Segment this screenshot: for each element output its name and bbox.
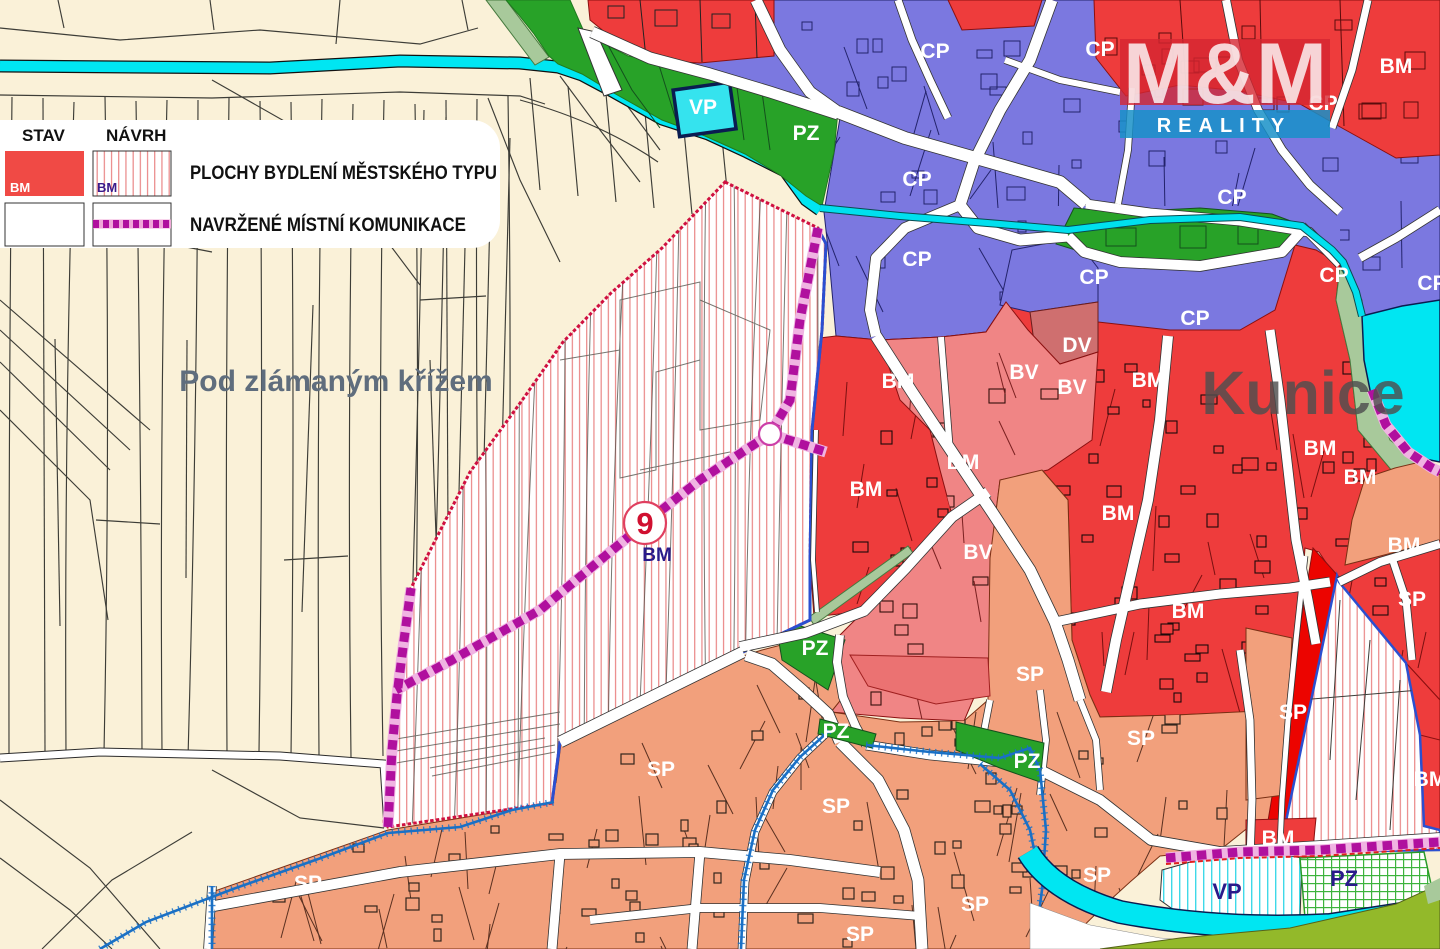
svg-text:CP: CP [1079, 266, 1108, 289]
svg-text:DV: DV [1062, 334, 1091, 357]
svg-text:CP: CP [902, 168, 931, 191]
svg-text:PZ: PZ [1330, 866, 1358, 891]
svg-text:BM: BM [1344, 466, 1377, 489]
svg-text:REALITY: REALITY [1157, 115, 1292, 137]
svg-text:BV: BV [963, 541, 992, 564]
svg-text:PLOCHY BYDLENÍ MĚSTSKÉHO TYPU: PLOCHY BYDLENÍ MĚSTSKÉHO TYPU [190, 162, 497, 184]
svg-text:SP: SP [1398, 588, 1426, 611]
svg-text:PZ: PZ [793, 122, 820, 145]
svg-text:BM: BM [1414, 768, 1440, 791]
svg-text:Kunice: Kunice [1201, 359, 1404, 427]
svg-text:CP: CP [1319, 264, 1348, 287]
svg-text:BV: BV [1057, 376, 1086, 399]
svg-text:SP: SP [1016, 663, 1044, 686]
svg-text:CP: CP [1417, 272, 1440, 295]
svg-text:BV: BV [1009, 361, 1038, 384]
svg-text:SP: SP [1279, 701, 1307, 724]
svg-text:CP: CP [902, 248, 931, 271]
svg-text:BM: BM [947, 451, 980, 474]
svg-text:BM: BM [10, 180, 30, 195]
svg-text:SP: SP [294, 872, 322, 895]
svg-text:9: 9 [636, 506, 653, 541]
svg-text:SP: SP [961, 893, 989, 916]
svg-text:NAVRŽENÉ MÍSTNÍ KOMUNIKACE: NAVRŽENÉ MÍSTNÍ KOMUNIKACE [190, 214, 466, 236]
svg-text:CP: CP [920, 40, 949, 63]
svg-text:BM: BM [1102, 502, 1135, 525]
svg-text:VP: VP [689, 96, 717, 119]
svg-text:SP: SP [1127, 727, 1155, 750]
svg-text:CP: CP [1180, 307, 1209, 330]
svg-text:BM: BM [1388, 534, 1421, 557]
svg-text:CP: CP [1217, 186, 1246, 209]
svg-text:VP: VP [1212, 879, 1241, 904]
svg-text:BM: BM [642, 545, 672, 566]
svg-text:STAV: STAV [22, 126, 65, 145]
svg-text:BM: BM [850, 478, 883, 501]
svg-text:PZ: PZ [802, 637, 829, 660]
svg-text:PZ: PZ [1014, 750, 1041, 773]
svg-text:BM: BM [882, 370, 915, 393]
svg-text:M&M: M&M [1123, 26, 1327, 122]
svg-text:NÁVRH: NÁVRH [106, 126, 166, 145]
svg-text:BM: BM [97, 180, 117, 195]
svg-text:PZ: PZ [823, 720, 850, 743]
svg-text:BM: BM [1132, 369, 1165, 392]
svg-text:CP: CP [1085, 38, 1114, 61]
svg-text:SP: SP [822, 795, 850, 818]
svg-text:SP: SP [1083, 864, 1111, 887]
svg-text:BM: BM [1262, 827, 1295, 850]
svg-text:SP: SP [846, 923, 874, 946]
svg-text:BM: BM [1380, 55, 1413, 78]
svg-text:Pod zlámaným křížem: Pod zlámaným křížem [179, 365, 492, 398]
svg-text:BM: BM [1172, 600, 1205, 623]
svg-text:SP: SP [647, 758, 675, 781]
svg-text:BM: BM [1304, 437, 1337, 460]
